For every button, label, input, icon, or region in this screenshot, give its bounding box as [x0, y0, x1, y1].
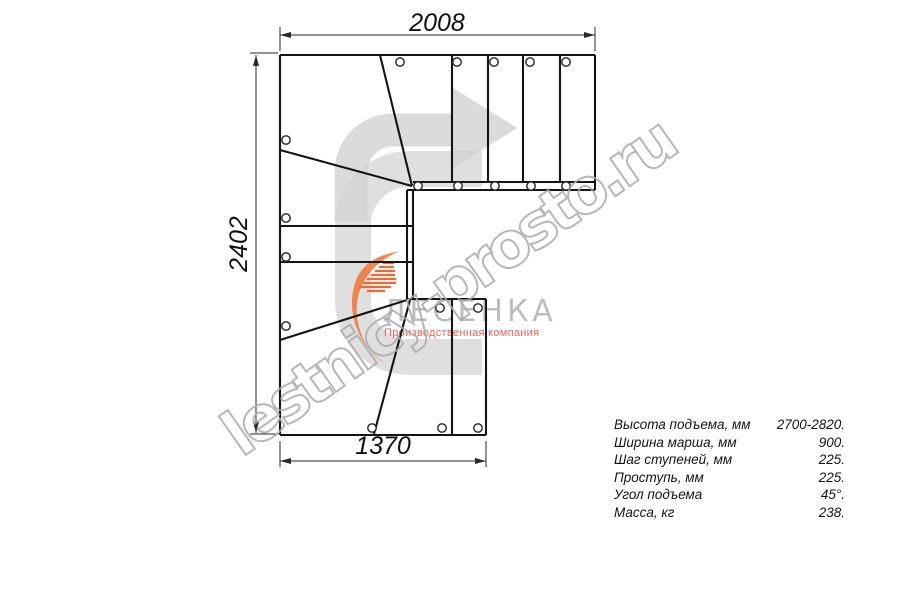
screw-hole	[453, 58, 461, 66]
spec-label: Масса, кг	[614, 504, 674, 522]
dimension-arrow	[280, 32, 291, 38]
stair-plan-drawing: ЛЕСЕНКА Производственная компания 200824…	[0, 0, 900, 600]
spec-value: 900.	[819, 434, 845, 452]
screw-hole	[491, 182, 499, 190]
dimension-2008: 2008	[280, 9, 595, 51]
screw-hole	[526, 58, 534, 66]
spec-row: Шаг ступеней, мм 225.	[614, 451, 845, 469]
screw-hole	[282, 322, 290, 330]
dimension-label: 2402	[225, 216, 253, 273]
dimension-label: 1370	[355, 432, 411, 460]
screw-hole	[368, 424, 376, 432]
spec-value: 225.	[819, 451, 845, 469]
dimension-1370: 1370	[280, 432, 486, 467]
dimension-arrow	[475, 458, 486, 464]
spec-label: Ширина марша, мм	[614, 434, 737, 452]
screw-hole	[282, 253, 290, 261]
dimension-arrow	[280, 458, 291, 464]
dimension-arrow	[584, 32, 595, 38]
screw-hole	[474, 424, 482, 432]
dimension-arrow	[253, 55, 259, 66]
screw-hole	[438, 424, 446, 432]
spec-value: 225.	[819, 469, 845, 487]
dimension-label: 2008	[408, 9, 465, 37]
spec-value: 45°.	[821, 486, 845, 504]
spec-label: Высота подъема, мм	[614, 416, 750, 434]
screw-hole	[454, 182, 462, 190]
screw-hole	[414, 182, 422, 190]
screw-hole	[396, 58, 404, 66]
spec-row: Масса, кг 238.	[614, 504, 845, 522]
specs-table: Высота подъема, мм 2700-2820. Ширина мар…	[614, 416, 845, 521]
screw-hole	[562, 58, 570, 66]
screw-hole	[490, 58, 498, 66]
spec-row: Высота подъема, мм 2700-2820.	[614, 416, 845, 434]
screw-hole	[282, 214, 290, 222]
direction-arrow-head	[453, 88, 517, 168]
spec-row: Угол подъема 45°.	[614, 486, 845, 504]
spec-label: Проступь, мм	[614, 469, 704, 487]
spec-value: 2700-2820.	[777, 416, 845, 434]
spec-label: Шаг ступеней, мм	[614, 451, 732, 469]
spec-row: Проступь, мм 225.	[614, 469, 845, 487]
spec-value: 238.	[819, 504, 845, 522]
spec-row: Ширина марша, мм 900.	[614, 434, 845, 452]
spec-label: Угол подъема	[614, 486, 702, 504]
screw-hole	[282, 136, 290, 144]
